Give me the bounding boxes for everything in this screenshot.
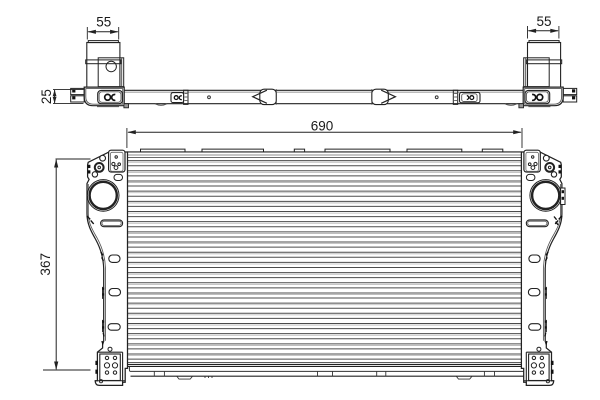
svg-text:55: 55 [96, 15, 111, 30]
svg-text:25: 25 [39, 89, 54, 104]
svg-text:690: 690 [311, 119, 334, 134]
svg-text:367: 367 [38, 253, 53, 276]
svg-text:55: 55 [536, 14, 551, 29]
